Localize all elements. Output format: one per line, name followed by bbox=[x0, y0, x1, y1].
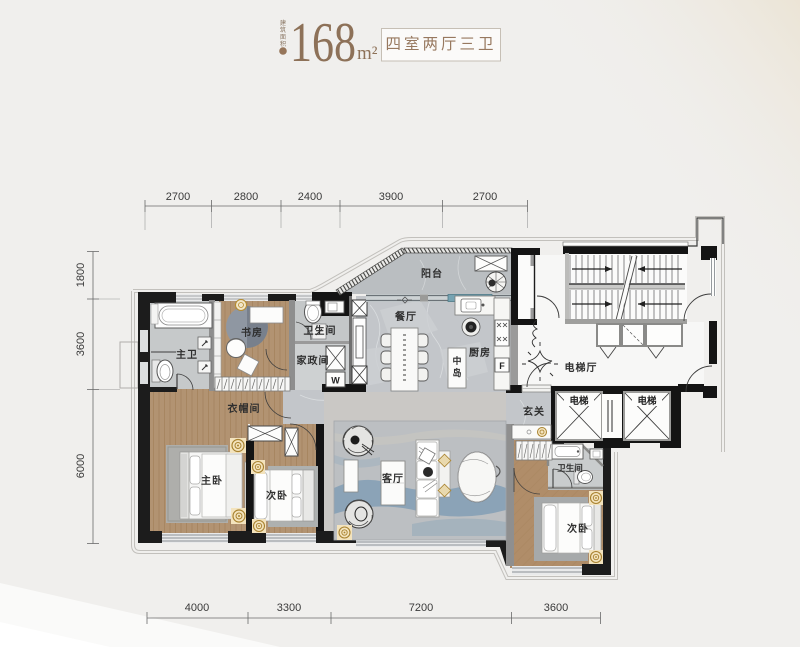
svg-text:W: W bbox=[331, 376, 340, 386]
svg-text:面: 面 bbox=[280, 34, 286, 41]
svg-text:电梯: 电梯 bbox=[569, 395, 589, 407]
svg-text:积: 积 bbox=[280, 40, 286, 48]
svg-text:四室两厅三卫: 四室两厅三卫 bbox=[385, 35, 496, 53]
svg-text:3600: 3600 bbox=[75, 332, 87, 356]
svg-text:2700: 2700 bbox=[166, 191, 190, 203]
svg-text:7200: 7200 bbox=[409, 602, 433, 614]
svg-text:客厅: 客厅 bbox=[381, 472, 404, 485]
svg-text:6000: 6000 bbox=[75, 454, 87, 478]
svg-text:阳台: 阳台 bbox=[421, 267, 443, 280]
svg-text:2800: 2800 bbox=[234, 191, 258, 203]
svg-text:3900: 3900 bbox=[379, 191, 403, 203]
svg-text:168: 168 bbox=[290, 12, 356, 74]
svg-text:岛: 岛 bbox=[452, 367, 461, 378]
svg-text:中: 中 bbox=[452, 355, 461, 366]
svg-text:主卫: 主卫 bbox=[176, 348, 198, 361]
svg-text:卫生间: 卫生间 bbox=[304, 324, 337, 337]
svg-text:衣帽间: 衣帽间 bbox=[228, 402, 261, 415]
svg-text:电梯: 电梯 bbox=[637, 395, 657, 407]
svg-text:书房: 书房 bbox=[241, 326, 263, 339]
svg-text:2700: 2700 bbox=[473, 191, 497, 203]
svg-text:次卧: 次卧 bbox=[567, 522, 589, 535]
svg-text:卫生间: 卫生间 bbox=[557, 463, 583, 473]
svg-text:1800: 1800 bbox=[75, 263, 87, 287]
svg-text:建: 建 bbox=[280, 19, 286, 27]
svg-text:3300: 3300 bbox=[277, 602, 301, 614]
svg-text:3600: 3600 bbox=[544, 602, 568, 614]
svg-text:电梯厅: 电梯厅 bbox=[565, 361, 598, 374]
svg-text:次卧: 次卧 bbox=[266, 489, 288, 502]
svg-text:餐厅: 餐厅 bbox=[394, 310, 417, 323]
svg-text:m²: m² bbox=[357, 43, 378, 64]
svg-text:F: F bbox=[499, 361, 505, 371]
svg-text:2400: 2400 bbox=[298, 191, 322, 203]
svg-text:主卧: 主卧 bbox=[201, 474, 223, 487]
svg-text:家政间: 家政间 bbox=[297, 354, 330, 367]
svg-text:厨房: 厨房 bbox=[469, 346, 491, 359]
svg-text:4000: 4000 bbox=[185, 602, 209, 614]
svg-text:筑: 筑 bbox=[280, 26, 287, 34]
svg-text:玄关: 玄关 bbox=[523, 405, 545, 418]
